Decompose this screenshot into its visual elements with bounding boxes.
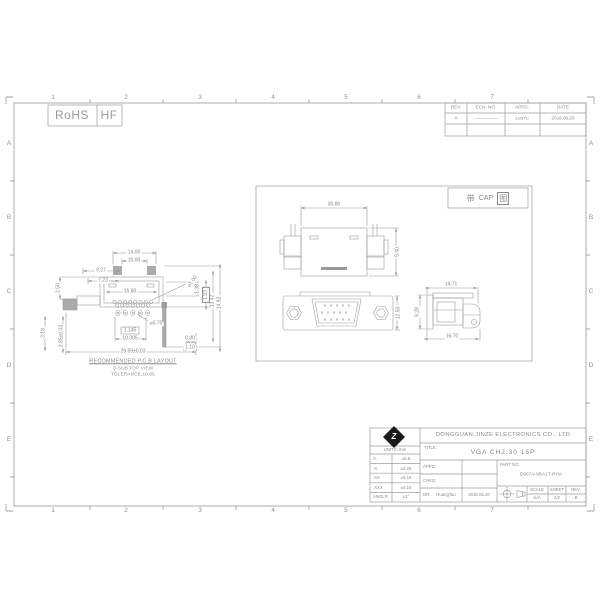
- appd-col-header: APPD.: [515, 106, 529, 111]
- rev-value: A: [454, 116, 457, 121]
- zone-row: A: [589, 141, 593, 148]
- zone-col: 5: [344, 95, 348, 102]
- zone-col: 7: [490, 95, 494, 102]
- tol-value: ±0.25: [401, 466, 412, 470]
- dim-tab-outer: 14.00: [127, 251, 142, 256]
- zone-col: 3: [198, 95, 202, 102]
- main-view-tolerance: TOLERANCE:±0.05: [111, 373, 155, 378]
- zone-row: B: [589, 215, 593, 222]
- zone-col: 3: [198, 508, 202, 515]
- zone-col: 6: [417, 508, 421, 515]
- dim-left-b: 3.18: [42, 327, 47, 339]
- zone-col: 6: [417, 95, 421, 102]
- dim-left-c: 2.85±0.03: [60, 324, 65, 348]
- tol-label: .XXX: [373, 485, 383, 489]
- dim-right-c: 13.42: [211, 294, 216, 309]
- dim-right-d: 14.92: [218, 296, 223, 311]
- dim-tail-w2: 1.10: [184, 345, 196, 350]
- dim-shell-width: 16.80: [123, 290, 138, 295]
- dim-detail-front-height: 12.50: [397, 306, 402, 321]
- appd-label: APPD:: [423, 465, 436, 469]
- zone-row: C: [7, 289, 12, 296]
- tol-value: ±0.10: [401, 485, 412, 489]
- zone-row: E: [589, 437, 593, 444]
- detail-box-label: 带 CAP 图: [448, 188, 528, 208]
- dim-detail-top-width: 30.80: [327, 203, 342, 208]
- sheet-value: 2/2: [554, 496, 560, 500]
- zone-row: A: [7, 141, 11, 148]
- zone-row: B: [7, 215, 11, 222]
- dim-right-a: 1.38: [196, 283, 201, 295]
- ecn-col-header: ECN. NO.: [476, 106, 496, 111]
- tol-value: ±2°: [403, 495, 409, 499]
- dim-pitch: 1.145: [123, 328, 138, 333]
- tol-label: .X: [373, 466, 377, 470]
- main-view-caption: RECOMMENDED P.C.B LAYOUT: [89, 359, 176, 365]
- dim-tab-inner: 10.00: [127, 259, 142, 264]
- zone-row: D: [589, 363, 594, 370]
- dim-detail-top-height: 9.40: [396, 246, 401, 258]
- zone-col: 2: [124, 508, 128, 515]
- units-label: UNITS: mm: [384, 448, 406, 452]
- zone-col: 1: [51, 508, 55, 515]
- dim-offset-a: 9.27: [95, 269, 107, 274]
- tol-label: ANGLR: [373, 495, 388, 499]
- detail-box: [256, 186, 532, 361]
- date-value: 2018.06.20: [552, 116, 575, 121]
- dim-tail-w1: 0.80: [184, 336, 196, 341]
- dim-detail-side-bottom: 16.70: [445, 334, 460, 339]
- tol-value: ±0.5: [402, 457, 410, 461]
- zone-row: C: [589, 289, 594, 296]
- dr-name: HuangTao: [436, 493, 456, 497]
- part-no: D907A-9BA1T-RHA: [520, 474, 562, 479]
- zone-row: E: [7, 437, 11, 444]
- scale-value: N/A: [533, 496, 540, 500]
- tol-label: X.: [373, 457, 377, 461]
- scale-label: SCALE: [530, 488, 544, 492]
- detail-label-prefix: 带: [467, 193, 475, 204]
- drawing-linework: [0, 0, 600, 600]
- logo-letter: Z: [392, 433, 397, 441]
- hf-label: HF: [101, 109, 118, 121]
- dr-date: 2018.06.20: [468, 493, 490, 497]
- dim-detail-side-left: 9.28: [416, 306, 421, 318]
- zone-col: 7: [490, 508, 494, 515]
- tol-label: .XX: [373, 476, 380, 480]
- dim-overall: 29.99±0.03: [120, 350, 147, 355]
- appd-value: LuoYu: [515, 116, 528, 121]
- company-name: DONGGUAN JINZE ELECTRONICS CO., LTD: [436, 433, 570, 439]
- dim-pad-hole-dia: ⌀0.70: [149, 322, 164, 327]
- rev-col-header: REV.: [451, 106, 461, 111]
- detail-top-view: [280, 206, 399, 276]
- dim-row-span: 10.305: [121, 337, 138, 342]
- zone-col: 4: [271, 508, 275, 515]
- rev-label: REV.: [571, 488, 581, 492]
- zone-col: 5: [344, 508, 348, 515]
- sheet-label: SHEET: [550, 488, 564, 492]
- zone-col: 4: [271, 95, 275, 102]
- projection-symbol-icon: [500, 487, 526, 501]
- detail-label-suffix: 图: [497, 192, 509, 205]
- part-no-label: PART NO:: [500, 463, 520, 467]
- dr-label: DR:: [423, 493, 430, 497]
- dim-detail-side-top: 14.71: [444, 283, 459, 288]
- main-view-subcaption: D-SUB TOP VIEW: [113, 367, 154, 372]
- tol-value: ±0.15: [401, 476, 412, 480]
- zone-row: D: [7, 363, 12, 370]
- title-label: TITLE:: [424, 446, 437, 450]
- engineering-drawing-sheet: { "sheet": { "zone_cols": ["1","2","3","…: [0, 0, 600, 600]
- zone-col: 1: [51, 95, 55, 102]
- ecn-value: —————: [475, 116, 498, 121]
- rohs-label: RoHS: [55, 109, 89, 121]
- zone-col: 2: [124, 95, 128, 102]
- chkd-label: CHKD:: [423, 479, 436, 483]
- rev-value: B: [575, 496, 578, 500]
- date-col-header: DATE: [557, 106, 569, 111]
- detail-label-cap: CAP: [479, 195, 493, 202]
- dim-offset-b: 7.23: [97, 279, 109, 284]
- dim-left-a: 2.50: [57, 282, 62, 294]
- detail-front-view: [283, 292, 400, 330]
- drawing-title: VGA CH2.30 15P: [471, 450, 536, 457]
